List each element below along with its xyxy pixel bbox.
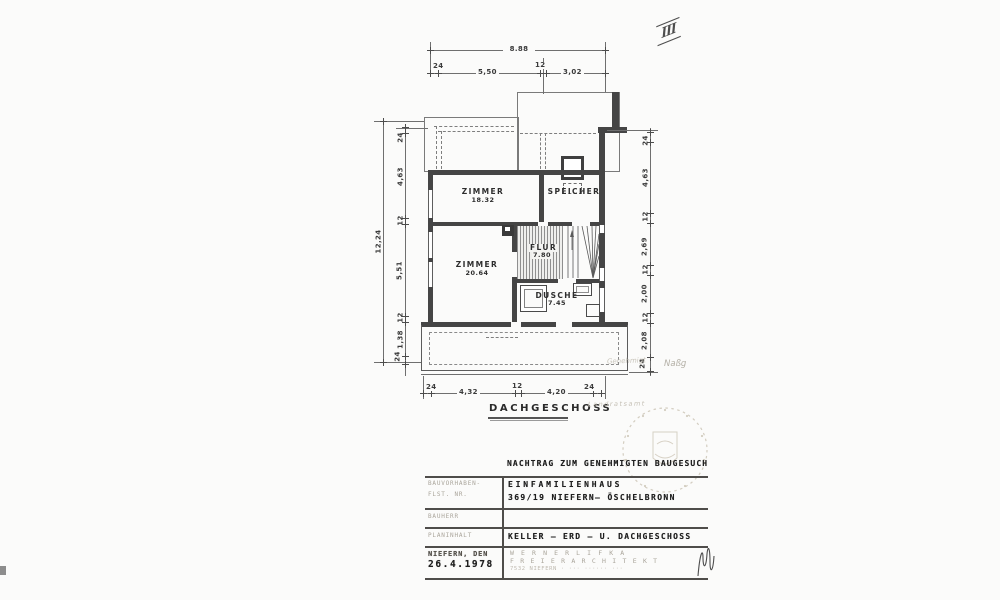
wall-flur-dusche [517,279,558,283]
wall-left [428,287,433,322]
dim-bottom-seg-0: 24 [424,384,439,391]
roof-dash-line [438,131,514,132]
dim-top-overall: 8.88 [503,46,535,53]
balcony-bottom-edge [421,374,628,375]
dim-right-seg-2: 12 [643,202,650,232]
balcony-dash-mark [486,337,518,338]
dim-tick [518,390,525,397]
titleblock-rule [425,527,708,529]
chimney [561,156,584,180]
room-area-zimmer-2: 20.64 [447,270,507,277]
dim-tick [590,390,597,397]
roof-dash-line [436,126,437,169]
dim-line-left-overall [383,119,384,364]
roof-dash-line [520,133,596,134]
roof-dash-line [545,133,546,169]
scan-edge-artifact [0,566,6,575]
dim-tick [602,70,609,77]
dim-top-seg-2: 12 [533,62,548,69]
titleblock-rule [425,476,708,478]
dim-left-seg-6: 24 [395,342,402,372]
dim-tick [435,70,442,77]
sheet-index-marker: III [656,17,681,46]
architect-name: W E R N E R L I F K A [510,549,626,557]
dim-left-seg-2: 12 [398,206,405,236]
window-left-3 [428,262,433,287]
dim-left-seg-3: 5,51 [397,256,404,286]
dim-bottom-seg-4: 24 [582,384,597,391]
dim-top-seg-3: 3,02 [561,69,584,76]
wall-right [599,281,605,288]
dim-left-seg-1: 4,63 [398,162,405,192]
dim-tick [427,70,434,77]
project-line2: 369/19 NIEFERN– ÖSCHELBRONN [508,493,676,502]
dim-tick [427,47,434,54]
dim-tick [543,70,550,77]
floor-title-underline [488,417,568,419]
room-area-zimmer-1: 18.32 [453,197,513,204]
architect-signature [694,542,718,580]
dim-tick [402,361,409,368]
duct-block-inner [505,227,510,231]
date: 26.4.1978 [428,559,494,570]
titleblock-divider [502,476,504,578]
dim-left-overall: 12,24 [376,227,383,257]
window-left-1 [428,190,433,218]
dim-line-right-segments [650,128,651,376]
window-left-2 [428,232,433,258]
dim-top-seg-1: 5,50 [476,69,499,76]
project-line1: EINFAMILIENHAUS [508,480,622,489]
field-label-line1: BAUVORHABEN- [428,480,481,487]
ext-line [605,376,606,399]
roof-dash-line [441,131,442,169]
titleblock-rule [425,546,708,548]
titleblock-header: NACHTRAG ZUM GENEHMIGTEN BAUGESUCH [507,459,708,468]
floor-title-underline-2 [490,420,568,421]
dim-tick [428,390,435,397]
dim-right-seg-0: 24 [643,126,650,156]
place-label: NIEFERN, DEN [428,550,488,558]
plan-content: KELLER – ERD – U. DACHGESCHOSS [508,532,692,541]
dim-left-seg-0: 24 [398,123,405,153]
field-label-row3: PLANINHALT [428,532,472,539]
architect-title: F R E I E R A R C H I T E K T [510,557,658,565]
wall-right [599,128,605,225]
titleblock-rule [425,508,708,510]
dim-bottom-seg-1: 4,32 [457,389,480,396]
field-label-line2: FLST. NR. [428,491,468,498]
dim-bottom-seg-3: 4,20 [545,389,568,396]
dim-bottom-seg-2: 12 [510,383,525,390]
wall-left [428,170,433,190]
room-label-zimmer-1: ZIMMER [453,188,513,196]
wall-zimmer-speicher [539,175,544,222]
roof-dash-line [434,126,514,127]
room-area-dusche: 7.45 [527,300,587,307]
architect-address: 7532 NIEFERN · ··· ······ ··· [510,566,623,572]
dim-tick [420,390,427,397]
dim-line-left-segments [405,125,406,376]
stair-direction-arrow [570,230,574,237]
dim-right-seg-1: 4,63 [643,163,650,193]
field-label-row2: BAUHERR [428,513,459,520]
dim-top-seg-0: 24 [431,63,446,70]
room-label-speicher: SPEICHER [544,188,604,196]
staircase [563,226,600,279]
titleblock-rule [425,578,708,580]
dim-tick [598,390,605,397]
dim-tick [380,118,387,125]
room-area-flur: 7.80 [532,252,552,259]
pencil-note-genehmigt: Genehmigt [607,356,646,365]
room-label-zimmer-2: ZIMMER [447,261,507,269]
roof-dash-line [540,133,541,169]
wall-zimmer-flur [512,277,517,322]
pencil-note-nassg: Naßg [664,359,686,369]
dim-tick [647,368,654,375]
dim-tick [602,47,609,54]
sink [586,304,600,317]
wall-top-main [428,170,605,175]
balcony-dashed-line [429,332,619,365]
round-approval-stamp [615,398,715,498]
dim-tick [380,359,387,366]
